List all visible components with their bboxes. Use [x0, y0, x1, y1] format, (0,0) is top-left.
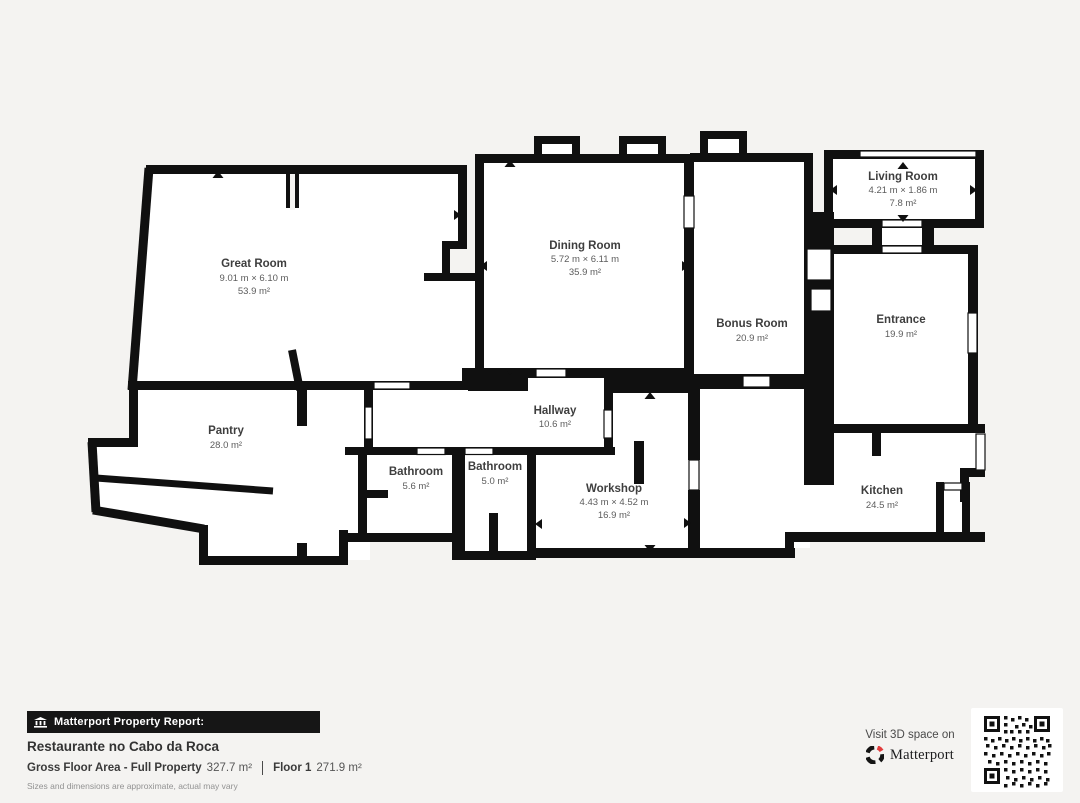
svg-text:28.0 m²: 28.0 m²	[210, 440, 242, 451]
disclaimer-text: Sizes and dimensions are approximate, ac…	[27, 781, 238, 791]
svg-text:16.9 m²: 16.9 m²	[598, 510, 630, 521]
svg-text:Dining Room: Dining Room	[549, 240, 621, 252]
svg-text:24.5 m²: 24.5 m²	[866, 500, 898, 511]
svg-text:5.0 m²: 5.0 m²	[482, 476, 509, 487]
qr-code	[971, 708, 1063, 792]
floor-plan: Great Room 9.01 m × 6.10 m 53.9 m² Dinin…	[0, 0, 1080, 803]
svg-text:Entrance: Entrance	[876, 314, 925, 326]
svg-text:Bathroom: Bathroom	[468, 461, 522, 473]
svg-text:Living Room: Living Room	[868, 171, 938, 183]
room-interiors	[90, 133, 984, 560]
matterport-mark-icon	[866, 746, 884, 764]
svg-text:5.72 m × 6.11 m: 5.72 m × 6.11 m	[551, 254, 619, 265]
svg-text:10.6 m²: 10.6 m²	[539, 419, 571, 430]
gross-floor-area-value: 327.7 m²	[207, 762, 252, 774]
svg-text:53.9 m²: 53.9 m²	[238, 286, 270, 297]
svg-text:Bathroom: Bathroom	[389, 466, 443, 478]
floor-plan-page: Great Room 9.01 m × 6.10 m 53.9 m² Dinin…	[0, 0, 1080, 803]
floor-area-value: 271.9 m²	[316, 762, 361, 774]
svg-text:Hallway: Hallway	[534, 405, 577, 417]
svg-text:Kitchen: Kitchen	[861, 485, 903, 497]
visit-3d-cta: Visit 3D space on Matterport	[851, 729, 969, 764]
metrics-divider	[262, 761, 263, 775]
qr-pattern	[971, 708, 1063, 792]
svg-text:4.21 m × 1.86 m: 4.21 m × 1.86 m	[869, 185, 938, 196]
matterport-wordmark: Matterport	[890, 747, 954, 764]
svg-text:4.43 m × 4.52 m: 4.43 m × 4.52 m	[580, 497, 649, 508]
report-badge: Matterport Property Report:	[27, 711, 320, 733]
svg-text:5.6 m²: 5.6 m²	[403, 481, 430, 492]
svg-text:35.9 m²: 35.9 m²	[569, 267, 601, 278]
svg-text:Great Room: Great Room	[221, 258, 287, 270]
matterport-logo: Matterport	[866, 746, 954, 764]
visit-3d-text: Visit 3D space on	[865, 729, 954, 741]
svg-text:19.9 m²: 19.9 m²	[885, 329, 917, 340]
building-icon	[34, 717, 47, 728]
svg-text:Bonus Room: Bonus Room	[716, 318, 788, 330]
svg-text:Pantry: Pantry	[208, 425, 244, 437]
svg-text:Workshop: Workshop	[586, 483, 642, 495]
svg-text:7.8 m²: 7.8 m²	[890, 198, 917, 209]
svg-text:9.01 m × 6.10 m: 9.01 m × 6.10 m	[220, 273, 289, 284]
property-name: Restaurante no Cabo da Roca	[27, 739, 219, 754]
floor-label: Floor 1	[273, 762, 311, 774]
svg-text:20.9 m²: 20.9 m²	[736, 333, 768, 344]
gross-floor-area-label: Gross Floor Area - Full Property	[27, 762, 202, 774]
area-metrics: Gross Floor Area - Full Property 327.7 m…	[27, 761, 362, 775]
report-badge-label: Matterport Property Report:	[54, 716, 204, 728]
